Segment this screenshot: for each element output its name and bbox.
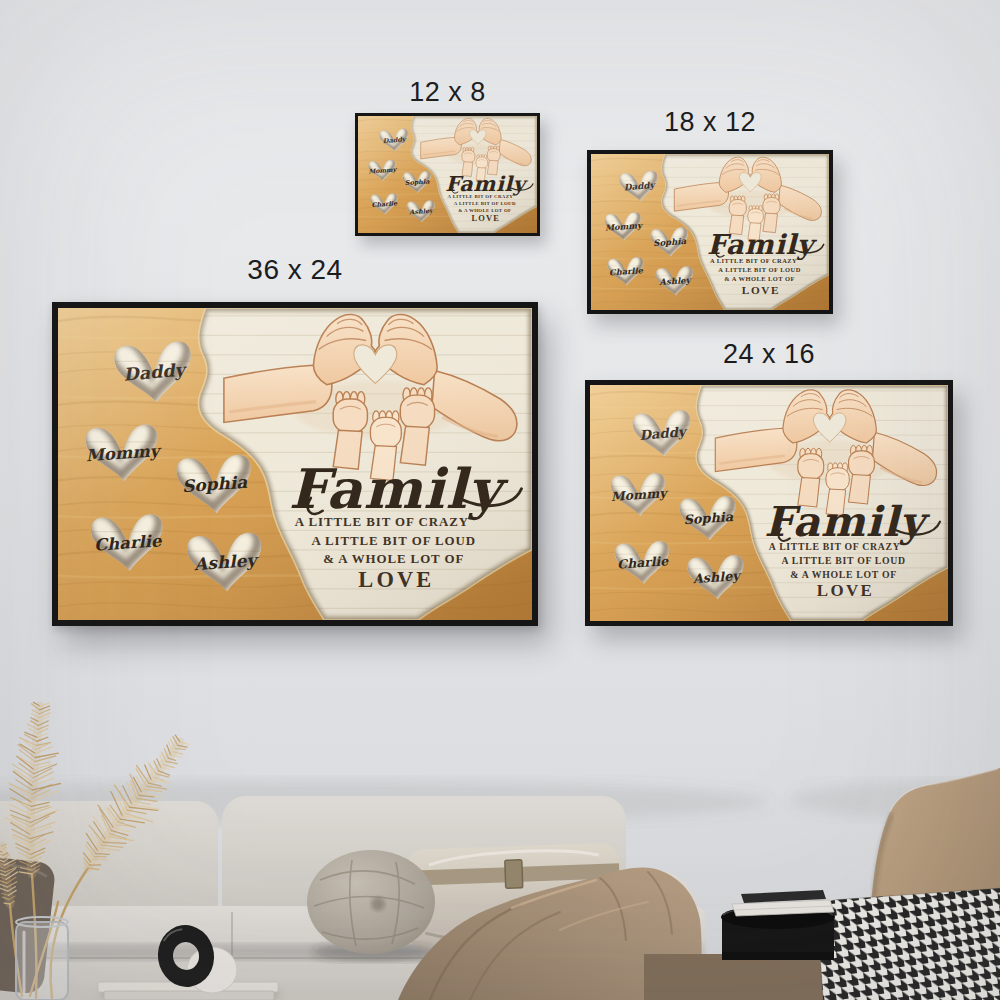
strap-buckle bbox=[505, 860, 523, 889]
poster-12x8: DaddyMommySophiaCharlieAshleyFamilyA LIT… bbox=[355, 113, 540, 236]
houndstooth-pillow bbox=[816, 886, 1000, 1000]
poster-artwork: DaddyMommySophiaCharlieAshleyFamilyA LIT… bbox=[358, 116, 537, 233]
poster-36x24: DaddyMommySophiaCharlieAshleyFamilyA LIT… bbox=[52, 302, 538, 626]
product-photo-wall-art-mockup: 12 x 8 18 x 12 36 x 24 24 x 16 DaddyMomm… bbox=[0, 0, 1000, 1000]
poster-18x12: DaddyMommySophiaCharlieAshleyFamilyA LIT… bbox=[587, 150, 833, 314]
glass-vase bbox=[16, 917, 68, 1000]
living-room-furniture bbox=[0, 650, 1000, 1000]
poster-artwork: DaddyMommySophiaCharlieAshleyFamilyA LIT… bbox=[591, 154, 829, 310]
poster-artwork: DaddyMommySophiaCharlieAshleyFamilyA LIT… bbox=[58, 308, 532, 620]
size-label-36x24: 36 x 24 bbox=[52, 254, 538, 286]
size-label-12x8: 12 x 8 bbox=[355, 77, 540, 108]
size-label-24x16: 24 x 16 bbox=[585, 339, 953, 370]
books-on-table bbox=[732, 890, 834, 916]
poster-24x16: DaddyMommySophiaCharlieAshleyFamilyA LIT… bbox=[585, 380, 953, 626]
size-label-18x12: 18 x 12 bbox=[587, 107, 833, 138]
side-table bbox=[721, 890, 835, 960]
poster-artwork: DaddyMommySophiaCharlieAshleyFamilyA LIT… bbox=[590, 385, 948, 621]
